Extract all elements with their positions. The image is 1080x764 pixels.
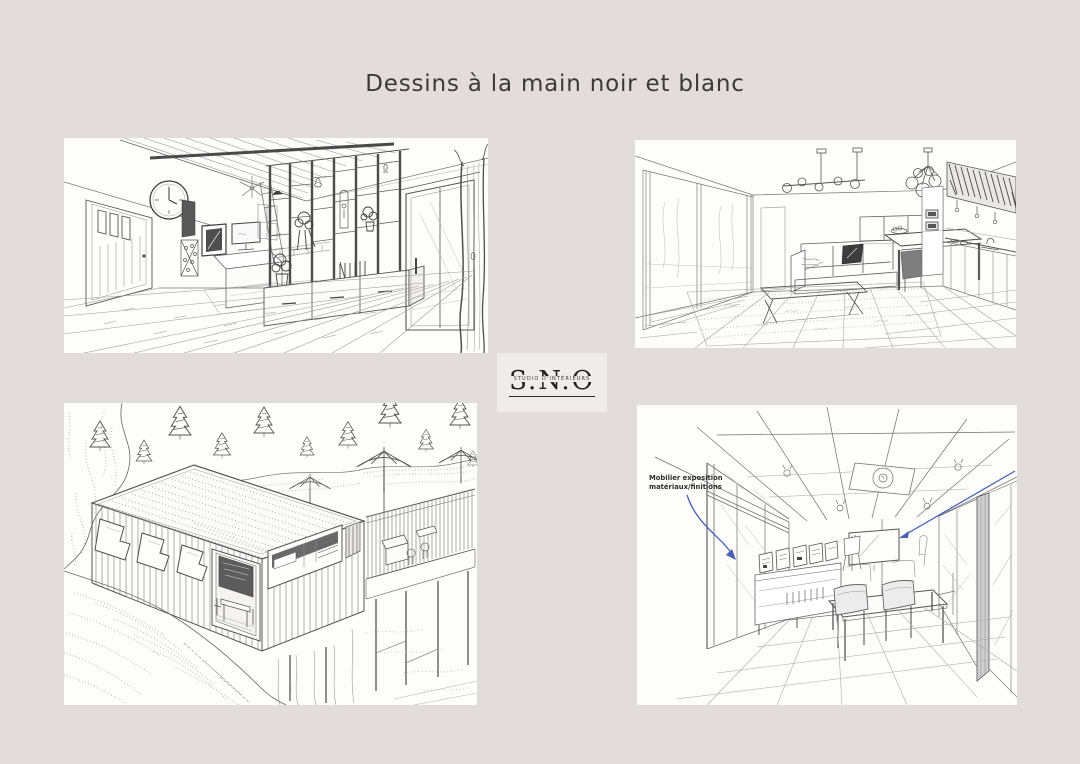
sketch-exhibition-drawing bbox=[637, 405, 1017, 705]
sketch-interior-claustra bbox=[64, 138, 488, 353]
sketch-interior-claustra-drawing bbox=[64, 138, 488, 353]
ceiling-fan bbox=[240, 176, 264, 198]
deck bbox=[366, 489, 475, 599]
open-front bbox=[212, 549, 260, 641]
fireplace bbox=[202, 224, 226, 256]
display-sideboard bbox=[755, 541, 841, 635]
claustra-posts bbox=[270, 151, 400, 287]
sketch-guinguette-exterior bbox=[64, 403, 477, 705]
stove-flue bbox=[182, 200, 195, 237]
sofa bbox=[791, 240, 897, 294]
ceiling-beam bbox=[150, 144, 394, 158]
floor-lines bbox=[677, 606, 1017, 705]
logo-underline bbox=[509, 396, 595, 397]
left-door bbox=[86, 200, 152, 306]
rug bbox=[687, 282, 941, 346]
stilts bbox=[290, 571, 468, 703]
back-door bbox=[761, 207, 785, 291]
annotation-line-1: Mobilier exposition bbox=[649, 474, 723, 483]
sketch-living-kitchen-drawing bbox=[635, 140, 1016, 348]
linear-chandelier bbox=[783, 148, 866, 193]
upper-cabinets bbox=[947, 162, 1016, 224]
annotation-label: Mobilier exposition matériaux/finitions bbox=[649, 474, 723, 492]
sketch-exhibition-room: Mobilier exposition matériaux/finitions bbox=[637, 405, 1017, 705]
ceiling-light-feature bbox=[849, 463, 915, 495]
pine-trees bbox=[90, 403, 477, 467]
page-title: Dessins à la main noir et blanc bbox=[0, 71, 1080, 97]
building bbox=[92, 465, 364, 651]
studio-logo: S.N.O STUDIO D'INTÉRIEURS bbox=[497, 353, 607, 412]
sketch-guinguette-drawing bbox=[64, 403, 477, 705]
logo-subtitle: STUDIO D'INTÉRIEURS bbox=[512, 376, 593, 382]
sliding-glass-doors bbox=[643, 170, 753, 330]
annotation-line-2: matériaux/finitions bbox=[649, 483, 723, 492]
studio-logo-lockup: S.N.O STUDIO D'INTÉRIEURS bbox=[509, 368, 595, 397]
tree-trunk bbox=[454, 144, 488, 353]
wall-chair-silhouette bbox=[919, 536, 927, 566]
tall-cabinet bbox=[922, 186, 943, 276]
portfolio-page: Dessins à la main noir et blanc bbox=[0, 0, 1080, 764]
dark-chair bbox=[901, 250, 923, 279]
log-storage bbox=[181, 240, 198, 276]
sketch-living-kitchen bbox=[635, 140, 1016, 348]
